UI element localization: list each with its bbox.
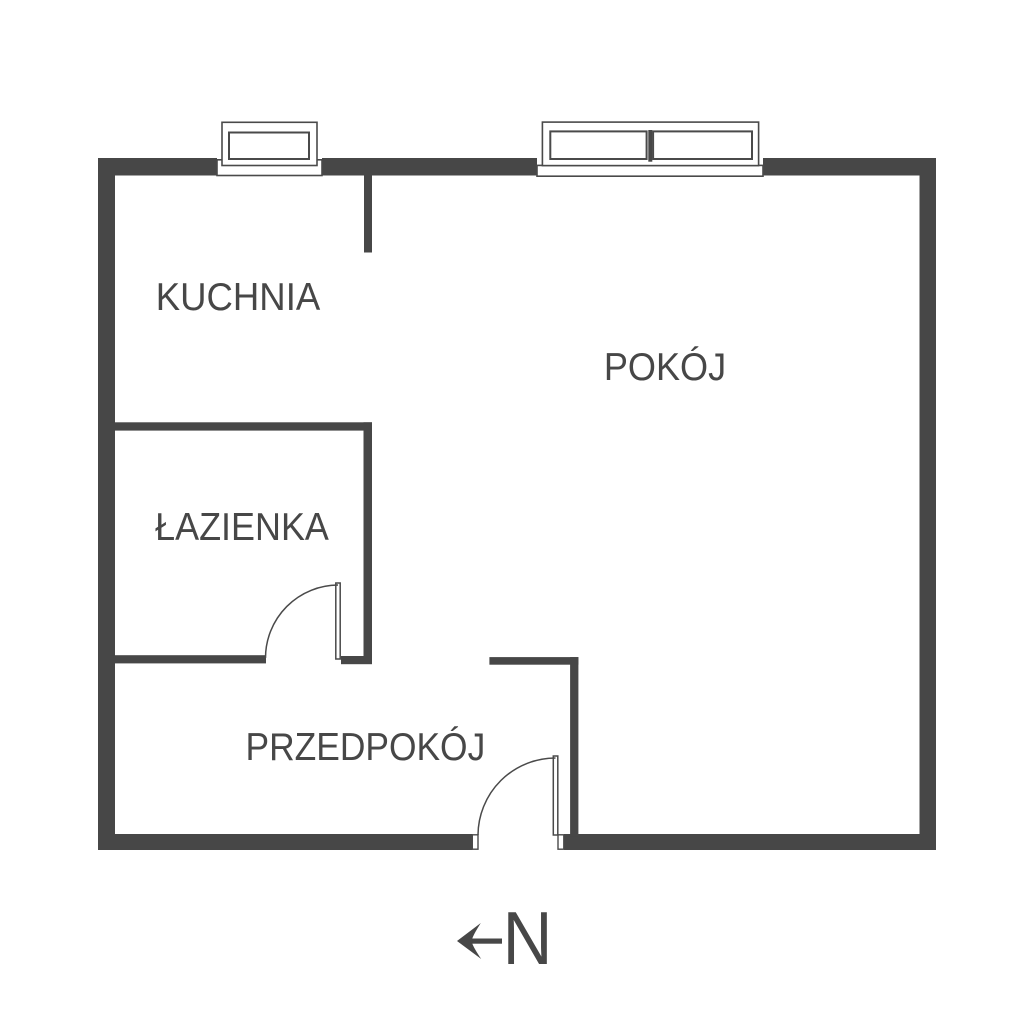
svg-text:N: N bbox=[503, 897, 553, 980]
svg-text:KUCHNIA: KUCHNIA bbox=[156, 276, 321, 319]
svg-text:POKÓJ: POKÓJ bbox=[604, 345, 726, 389]
svg-text:ŁAZIENKA: ŁAZIENKA bbox=[155, 505, 329, 549]
svg-text:PRZEDPOKÓJ: PRZEDPOKÓJ bbox=[246, 724, 486, 768]
